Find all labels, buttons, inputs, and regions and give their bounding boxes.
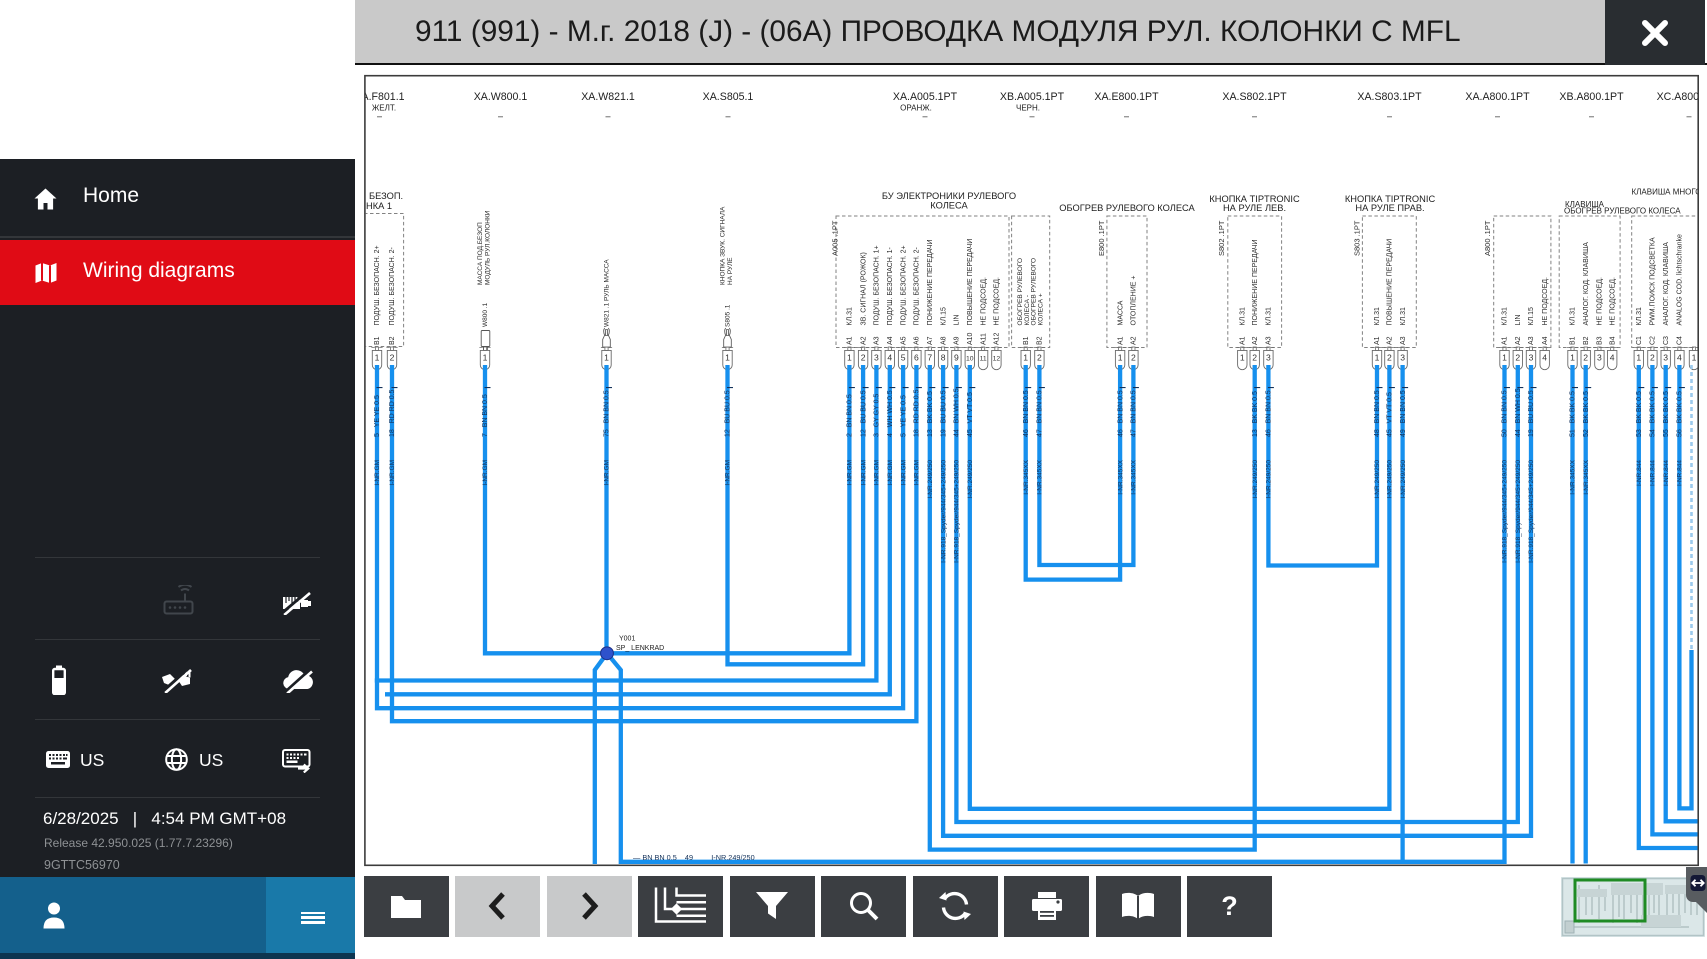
svg-text:3: 3	[1597, 353, 1602, 363]
svg-text:КЛ.31: КЛ.31	[847, 307, 854, 326]
svg-text:1: 1	[1570, 353, 1575, 363]
svg-text:6: 6	[914, 353, 919, 363]
svg-text:2 BN BN 0.5: 2 BN BN 0.5	[847, 394, 854, 437]
svg-text:A1: A1	[1240, 336, 1247, 345]
svg-text:ПОДУШ. БЕЗОПАСН. 2-: ПОДУШ. БЕЗОПАСН. 2-	[914, 246, 921, 325]
svg-text:A3: A3	[1266, 336, 1273, 345]
svg-text:3: 3	[1529, 353, 1534, 363]
svg-text:B2: B2	[1583, 336, 1590, 345]
svg-text:C1: C1	[1636, 336, 1643, 345]
svg-text:7: 7	[927, 353, 932, 363]
svg-text:ПОВЫШЕНИЕ ПЕРЕДАЧИ: ПОВЫШЕНИЕ ПЕРЕДАЧИ	[967, 239, 974, 326]
svg-text:C2: C2	[1650, 336, 1657, 345]
svg-text:XA.W821.1: XA.W821.1	[581, 91, 635, 103]
svg-text:4: 4	[887, 353, 892, 363]
svg-text:I-NR.GM: I-NR.GM	[482, 460, 489, 486]
svg-text:B1: B1	[374, 336, 381, 345]
svg-text:A3: A3	[874, 336, 881, 345]
svg-text:I-NR.844: I-NR.844	[1636, 460, 1643, 486]
svg-text:I-NR.844: I-NR.844	[1677, 460, 1684, 486]
svg-text:LIN: LIN	[954, 315, 961, 326]
svg-text:МАССА ПОД.БЕЗОП: МАССА ПОД.БЕЗОП	[477, 222, 484, 285]
svg-text:18 RD RD 0.5: 18 RD RD 0.5	[914, 389, 921, 437]
svg-text:19 BU BU 0.5: 19 BU BU 0.5	[940, 390, 947, 437]
svg-text:2: 2	[1131, 353, 1136, 363]
svg-text:КЛ.31: КЛ.31	[1374, 307, 1381, 326]
svg-text:КЛ.31: КЛ.31	[1636, 307, 1643, 326]
svg-text:I-NR.844: I-NR.844	[1650, 460, 1657, 486]
svg-text:A2: A2	[1252, 336, 1259, 345]
svg-text:A2: A2	[860, 336, 867, 345]
svg-text:МОДУЛЬ РУЛ.КОЛОНКИ: МОДУЛЬ РУЛ.КОЛОНКИ	[485, 210, 492, 285]
svg-text:A11: A11	[980, 333, 987, 345]
svg-text:ПОДУШ. БЕЗОПАСН. 1-: ПОДУШ. БЕЗОПАСН. 1-	[887, 246, 894, 325]
svg-text:I-NR.345XX: I-NR.345XX	[1037, 459, 1044, 494]
svg-text:48 BN BN 0.5: 48 BN BN 0.5	[1374, 390, 1381, 437]
svg-text:2: 2	[1515, 353, 1520, 363]
svg-text:НА РУЛЕ: НА РУЛЕ	[727, 257, 734, 285]
svg-text:45 VT VT 0.5: 45 VT VT 0.5	[967, 392, 974, 437]
svg-text:55 BK BK 0.5: 55 BK BK 0.5	[1663, 391, 1670, 437]
svg-text:1: 1	[604, 353, 609, 363]
svg-text:XB.A005.1PT: XB.A005.1PT	[1000, 91, 1065, 103]
svg-text:B1: B1	[1570, 336, 1577, 345]
svg-text:1: 1	[1636, 353, 1641, 363]
svg-text:SP_ LENKRAD: SP_ LENKRAD	[616, 645, 664, 652]
svg-text:5 YE YE 0.5: 5 YE YE 0.5	[900, 395, 907, 437]
svg-text:75 BN BN 0.5: 75 BN BN 0.5	[604, 390, 611, 437]
svg-text:C3: C3	[1663, 336, 1670, 345]
svg-text:ОБОГРЕВ РУЛЕВОГО КОЛЕСА: ОБОГРЕВ РУЛЕВОГО КОЛЕСА	[1059, 203, 1195, 213]
svg-text:A4: A4	[887, 336, 894, 345]
svg-text:2: 2	[390, 353, 395, 363]
svg-text:I-NR.GM: I-NR.GM	[604, 460, 611, 486]
svg-text:I-NR.249/250: I-NR.249/250	[1252, 460, 1259, 499]
svg-text:XA.F801.1: XA.F801.1	[354, 91, 404, 103]
svg-text:3: 3	[1266, 353, 1271, 363]
svg-text:C4: C4	[1677, 336, 1684, 345]
svg-text:1: 1	[1118, 353, 1123, 363]
svg-text:50 BN BN 0.5: 50 BN BN 0.5	[1502, 390, 1509, 437]
svg-text:2: 2	[861, 353, 866, 363]
svg-text:53 BK BK 0.5: 53 BK BK 0.5	[1636, 391, 1643, 437]
svg-text:КЛ.31: КЛ.31	[1570, 307, 1577, 326]
svg-text:АНАЛОГ. КОД. КЛАВИША: АНАЛОГ. КОД. КЛАВИША	[1583, 242, 1590, 326]
svg-text:12 BU BU 0.5: 12 BU BU 0.5	[725, 390, 732, 437]
svg-text:БУ ЭЛЕКТРОНИКИ РУЛЕВОГО: БУ ЭЛЕКТРОНИКИ РУЛЕВОГО	[882, 191, 1016, 201]
svg-text:1: 1	[1692, 353, 1697, 363]
svg-text:ЗВ. СИГНАЛ (РОЖОК): ЗВ. СИГНАЛ (РОЖОК)	[860, 252, 867, 325]
svg-text:A2: A2	[1131, 336, 1138, 345]
svg-text:ANALOG COD. lichtschranke: ANALOG COD. lichtschranke	[1677, 234, 1684, 326]
svg-text:S802 .1PT: S802 .1PT	[1217, 220, 1226, 256]
svg-text:НЕ ПОДСОЕД.: НЕ ПОДСОЕД.	[980, 277, 987, 325]
svg-text:КЛ.15: КЛ.15	[940, 307, 947, 326]
svg-text:1: 1	[375, 353, 380, 363]
svg-text:7 BN BN 0.5: 7 BN BN 0.5	[482, 394, 489, 437]
svg-text:S805 .1: S805 .1	[725, 304, 732, 327]
svg-text:54 BK BK 0.5: 54 BK BK 0.5	[1650, 391, 1657, 437]
svg-text:НЕ ПОДСОЕД.: НЕ ПОДСОЕД.	[994, 277, 1001, 325]
svg-text:2: 2	[1387, 353, 1392, 363]
svg-text:НЕ ПОДСОЕД.: НЕ ПОДСОЕД.	[1597, 277, 1604, 325]
svg-text:W821 .1 РУЛЬ МАССА: W821 .1 РУЛЬ МАССА	[604, 259, 611, 327]
svg-text:НЕ ПОДСОЕД.: НЕ ПОДСОЕД.	[1542, 277, 1549, 325]
svg-text:4: 4	[1542, 353, 1547, 363]
svg-text:ОБОГРЕВ РУЛЕВОГО КОЛЕСА: ОБОГРЕВ РУЛЕВОГО КОЛЕСА	[1564, 207, 1681, 216]
svg-text:ПОДУШ. БЕЗОПАСН. 2+: ПОДУШ. БЕЗОПАСН. 2+	[374, 245, 381, 325]
svg-text:18 RD RD 0.5: 18 RD RD 0.5	[389, 389, 396, 437]
svg-text:49 BN BN 0.5: 49 BN BN 0.5	[1400, 390, 1407, 437]
svg-text:44 BN WH 0.5: 44 BN WH 0.5	[1515, 388, 1522, 437]
svg-text:8: 8	[941, 353, 946, 363]
svg-text:A800 .1PT: A800 .1PT	[1483, 220, 1492, 256]
svg-text:W800 .1: W800 .1	[482, 302, 489, 327]
svg-text:КОЛЕСА +: КОЛЕСА +	[1038, 293, 1045, 325]
svg-text:A7: A7	[927, 336, 934, 345]
svg-text:НА РУЛЕ ЛЕВ.: НА РУЛЕ ЛЕВ.	[1223, 203, 1286, 213]
svg-text:I-NR.249/250: I-NR.249/250	[1400, 460, 1407, 499]
svg-text:2: 2	[1037, 353, 1042, 363]
svg-text:46 BN BN 0.5: 46 BN BN 0.5	[1117, 390, 1124, 437]
svg-text:2: 2	[1252, 353, 1257, 363]
svg-text:ОБОГРЕВ РУЛЕВОГО: ОБОГРЕВ РУЛЕВОГО	[1031, 258, 1038, 326]
svg-text:B2: B2	[1037, 336, 1044, 345]
svg-text:A1: A1	[1374, 336, 1381, 345]
svg-text:I-NR.GM: I-NR.GM	[389, 460, 396, 486]
svg-text:A2: A2	[1515, 336, 1522, 345]
svg-text:XA.A800.1PT: XA.A800.1PT	[1465, 91, 1530, 103]
svg-text:4 WH WH 0.5: 4 WH WH 0.5	[887, 390, 894, 437]
svg-text:1: 1	[1502, 353, 1507, 363]
svg-text:I-NR.844: I-NR.844	[1663, 460, 1670, 486]
svg-text:БЕЗОП.: БЕЗОП.	[369, 191, 403, 201]
svg-text:XA.S802.1PT: XA.S802.1PT	[1222, 91, 1287, 103]
svg-text:I-NR.249/250: I-NR.249/250	[1266, 460, 1273, 499]
svg-text:1: 1	[725, 353, 730, 363]
svg-text:ЧЕРН.: ЧЕРН.	[1016, 104, 1040, 113]
svg-text:A3: A3	[1528, 336, 1535, 345]
svg-text:B2: B2	[389, 336, 396, 345]
svg-text:ПОДУШ. БЕЗОПАСН. 2-: ПОДУШ. БЕЗОПАСН. 2-	[389, 246, 396, 325]
svg-text:1: 1	[483, 353, 488, 363]
svg-text:XA.A005.1PT: XA.A005.1PT	[893, 91, 958, 103]
svg-text:XA.E800.1PT: XA.E800.1PT	[1094, 91, 1159, 103]
svg-text:I-NR.918_Spyder/944/345+249/25: I-NR.918_Spyder/944/345+249/250	[1528, 460, 1535, 563]
svg-text:11: 11	[980, 356, 987, 363]
svg-text:A5: A5	[900, 336, 907, 345]
svg-text:2: 2	[1650, 353, 1655, 363]
svg-text:A10: A10	[967, 332, 974, 345]
svg-text:A1: A1	[847, 336, 854, 345]
svg-text:1: 1	[1023, 353, 1028, 363]
svg-text:I-NR.918_Spyder/944/345+249/25: I-NR.918_Spyder/944/345+249/250	[954, 460, 961, 563]
svg-text:1: 1	[1375, 353, 1380, 363]
svg-text:XA.S803.1PT: XA.S803.1PT	[1357, 91, 1422, 103]
svg-text:10: 10	[966, 356, 974, 363]
svg-text:13 BK BK 0.5: 13 BK BK 0.5	[927, 391, 934, 437]
svg-text:I-NR.345XX: I-NR.345XX	[1131, 459, 1138, 494]
svg-text:I-NR.GM: I-NR.GM	[887, 460, 894, 486]
svg-text:LIN: LIN	[1515, 315, 1522, 326]
svg-text:I-NR.249/250: I-NR.249/250	[1387, 460, 1394, 499]
svg-text:52 BK BK 0.5: 52 BK BK 0.5	[1583, 391, 1590, 437]
svg-text:ОТОПЛЕНИЕ +: ОТОПЛЕНИЕ +	[1131, 276, 1138, 326]
svg-text:ПОВЫШЕНИЕ ПЕРЕДАЧИ: ПОВЫШЕНИЕ ПЕРЕДАЧИ	[1387, 239, 1394, 326]
svg-text:I-NR.GM: I-NR.GM	[914, 460, 921, 486]
svg-text:B4: B4	[1609, 336, 1616, 345]
svg-text:A8: A8	[940, 336, 947, 345]
svg-text:ЖЕЛТ.: ЖЕЛТ.	[372, 104, 396, 113]
svg-text:ПОНИЖЕНИЕ ПЕРЕДАЧИ: ПОНИЖЕНИЕ ПЕРЕДАЧИ	[927, 240, 934, 326]
svg-text:A2: A2	[1387, 336, 1394, 345]
svg-text:I-NR.GM: I-NR.GM	[847, 460, 854, 486]
svg-text:5: 5	[901, 353, 906, 363]
svg-text:НА РУЛЕ ПРАВ.: НА РУЛЕ ПРАВ.	[1355, 203, 1424, 213]
svg-text:I-NR.249/250: I-NR.249/250	[927, 460, 934, 499]
svg-text:ПОДУШ. БЕЗОПАСН. 2+: ПОДУШ. БЕЗОПАСН. 2+	[900, 245, 907, 325]
svg-text:12 BU BU 0.5: 12 BU BU 0.5	[860, 390, 867, 437]
svg-text:ОРАНЖ.: ОРАНЖ.	[900, 104, 932, 113]
svg-text:B3: B3	[1597, 336, 1604, 345]
svg-text:XA.S805.1: XA.S805.1	[703, 91, 754, 103]
svg-text:I-NR.345XX: I-NR.345XX	[1023, 459, 1030, 494]
svg-text:I-NR.345XX: I-NR.345XX	[1583, 459, 1590, 494]
svg-text:КНОПКА ЗВУК. СИГНАЛА: КНОПКА ЗВУК. СИГНАЛА	[720, 206, 727, 285]
svg-text:— BN BN 0.5 49 I-NR: — BN BN 0.5 49 I-NR.249/250	[633, 853, 755, 862]
svg-text:ОБОГРЕВ РУЛЕВОГО: ОБОГРЕВ РУЛЕВОГО	[1017, 258, 1024, 326]
svg-text:E800 .1PT: E800 .1PT	[1097, 220, 1106, 256]
svg-text:КОЛЕСА: КОЛЕСА	[930, 201, 968, 211]
svg-text:XC.A800.1PT: XC.A800.1PT	[1657, 91, 1707, 103]
svg-text:1: 1	[847, 353, 852, 363]
svg-text:47 BN BN 0.5: 47 BN BN 0.5	[1131, 390, 1138, 437]
svg-text:XA.W800.1: XA.W800.1	[474, 91, 528, 103]
svg-text:НКА 1: НКА 1	[366, 201, 392, 211]
svg-text:НЕ ПОДСОЕД.: НЕ ПОДСОЕД.	[1609, 277, 1616, 325]
svg-text:A6: A6	[914, 336, 921, 345]
svg-text:I-NR.GM: I-NR.GM	[374, 460, 381, 486]
svg-text:2: 2	[1583, 353, 1588, 363]
svg-text:МАССА: МАССА	[1117, 300, 1124, 325]
svg-text:КЛ.31: КЛ.31	[1266, 307, 1273, 326]
svg-text:Y001: Y001	[619, 636, 635, 643]
svg-text:9: 9	[954, 353, 959, 363]
svg-text:XB.A800.1PT: XB.A800.1PT	[1559, 91, 1624, 103]
svg-text:13 BK BK 0.5: 13 BK BK 0.5	[1252, 391, 1259, 437]
svg-text:I-NR.345XX: I-NR.345XX	[1117, 459, 1124, 494]
svg-text:1: 1	[1240, 353, 1245, 363]
svg-text:3: 3	[874, 353, 879, 363]
svg-text:51 BK BK 0.5: 51 BK BK 0.5	[1570, 391, 1577, 437]
svg-text:5 YE YE 0.5: 5 YE YE 0.5	[374, 395, 381, 437]
svg-text:A005 .1PT: A005 .1PT	[831, 220, 840, 256]
svg-text:S803 .1PT: S803 .1PT	[1353, 220, 1362, 256]
svg-text:ПОНИЖЕНИЕ ПЕРЕДАЧИ: ПОНИЖЕНИЕ ПЕРЕДАЧИ	[1252, 240, 1259, 326]
svg-text:КЛ.31: КЛ.31	[1502, 307, 1509, 326]
svg-text:56 BK BK 0.5: 56 BK BK 0.5	[1677, 391, 1684, 437]
svg-text:I-NR.918_Spyder/944/345+249/25: I-NR.918_Spyder/944/345+249/250	[1502, 460, 1509, 563]
svg-text:A3: A3	[1400, 336, 1407, 345]
svg-text:A1: A1	[1502, 336, 1509, 345]
svg-text:АНАЛОГ. КОД. КЛАВИША: АНАЛОГ. КОД. КЛАВИША	[1663, 242, 1670, 326]
svg-text:46 BN BN 0.5: 46 BN BN 0.5	[1266, 390, 1273, 437]
svg-text:4: 4	[1610, 353, 1615, 363]
svg-text:I-NR.GM: I-NR.GM	[860, 460, 867, 486]
svg-text:I-NR.GM: I-NR.GM	[874, 460, 881, 486]
svg-text:3 GY GY 0.5: 3 GY GY 0.5	[874, 394, 881, 437]
svg-text:B1: B1	[1023, 336, 1030, 345]
svg-text:A9: A9	[954, 336, 961, 345]
svg-text:КЛАВИША МНОГОФУНКЦ.: КЛАВИША МНОГОФУНКЦ.	[1632, 188, 1707, 197]
svg-text:12: 12	[993, 356, 1001, 363]
svg-text:3: 3	[1400, 353, 1405, 363]
svg-text:PWM.ПОИСК ПОДСВЕТКА: PWM.ПОИСК ПОДСВЕТКА	[1650, 237, 1657, 325]
svg-text:КЛ.31: КЛ.31	[1400, 307, 1407, 326]
svg-text:44 BN WH 0.5: 44 BN WH 0.5	[954, 388, 961, 437]
svg-text:КЛ.31: КЛ.31	[1240, 307, 1247, 326]
svg-text:A1: A1	[1117, 336, 1124, 345]
svg-text:I-NR.249/250: I-NR.249/250	[967, 460, 974, 499]
svg-text:I-NR.918_Spyder/944/345+249/25: I-NR.918_Spyder/944/345+249/250	[940, 460, 947, 563]
svg-text:19 BU BU 0.5: 19 BU BU 0.5	[1528, 390, 1535, 437]
svg-text:A12: A12	[994, 332, 1001, 345]
svg-text:ПОДУШ. БЕЗОПАСН. 1+: ПОДУШ. БЕЗОПАСН. 1+	[874, 245, 881, 325]
svg-text:46 BN BN 0.5: 46 BN BN 0.5	[1023, 390, 1030, 437]
svg-text:A4: A4	[1542, 336, 1549, 345]
svg-text:I-NR.918_Spyder/944/345+249/25: I-NR.918_Spyder/944/345+249/250	[1515, 460, 1522, 563]
svg-text:4: 4	[1677, 353, 1682, 363]
svg-text:47 BN BN 0.5: 47 BN BN 0.5	[1037, 390, 1044, 437]
svg-text:КЛ.15: КЛ.15	[1528, 307, 1535, 326]
svg-text:3: 3	[1663, 353, 1668, 363]
svg-text:I-NR.345XX: I-NR.345XX	[1570, 459, 1577, 494]
svg-text:I-NR.GM: I-NR.GM	[900, 460, 907, 486]
svg-text:45 VT VT 0.5: 45 VT VT 0.5	[1387, 392, 1394, 437]
svg-text:I-NR.249/250: I-NR.249/250	[1374, 460, 1381, 499]
svg-text:I-NR.GM: I-NR.GM	[725, 460, 732, 486]
